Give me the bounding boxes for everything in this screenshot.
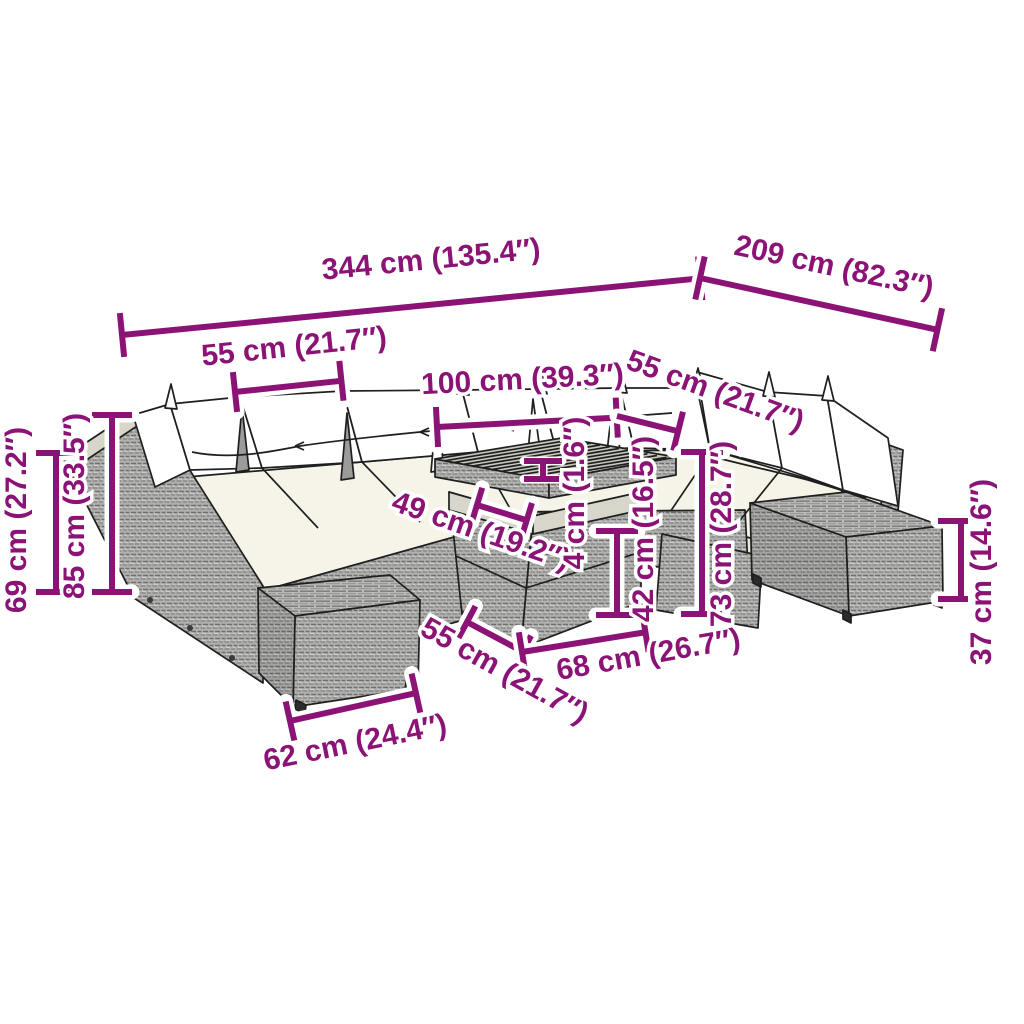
dim-table-height-label: 42 cm (16.5″)	[627, 436, 660, 622]
frame-ear	[822, 376, 834, 401]
panel-rivet	[187, 625, 193, 631]
panel-rivet	[147, 597, 153, 603]
dim-overall-width-label: 344 cm (135.4″)	[320, 232, 542, 286]
panel-rivet	[229, 655, 235, 661]
dim-ottoman-height-label: 37 cm (14.6″)	[965, 479, 998, 665]
dim-backrest-height-label: 85 cm (33.5″)	[58, 413, 91, 599]
ottoman-right	[750, 492, 943, 623]
dimension-diagram: 344 cm (135.4″) 209 cm (82.3″) 55 cm (21…	[0, 0, 1024, 1024]
dim-armrest-height-label: 69 cm (27.2″)	[0, 427, 33, 613]
ottoman-right-front	[846, 526, 943, 616]
diagram-canvas: 344 cm (135.4″) 209 cm (82.3″) 55 cm (21…	[0, 0, 1024, 1024]
dim-sofa-height-label: 73 cm (28.7″)	[705, 441, 738, 627]
dim-tabletop-thickness-label: 4 cm (1.6″)	[558, 417, 591, 570]
frame-ear	[165, 384, 177, 409]
